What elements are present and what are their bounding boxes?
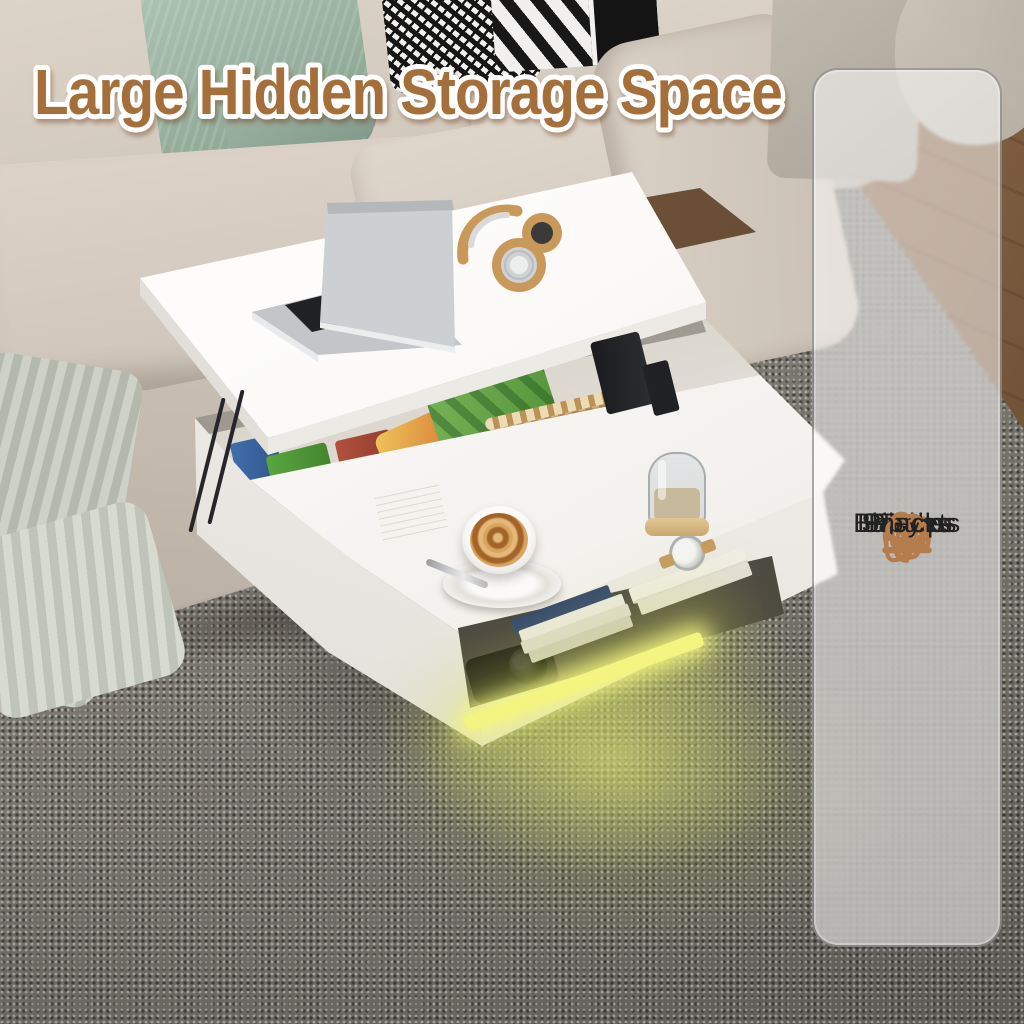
panel-label: Snacks — [861, 508, 953, 539]
headline: Large Hidden Storage Space — [30, 44, 794, 136]
storage-items-panel: Pillows Blankets Books — [812, 68, 1002, 947]
headline-text: Large Hidden Storage Space — [34, 56, 782, 128]
product-marketing-image: Large Hidden Storage Space Pillows Blank… — [0, 0, 1024, 1024]
